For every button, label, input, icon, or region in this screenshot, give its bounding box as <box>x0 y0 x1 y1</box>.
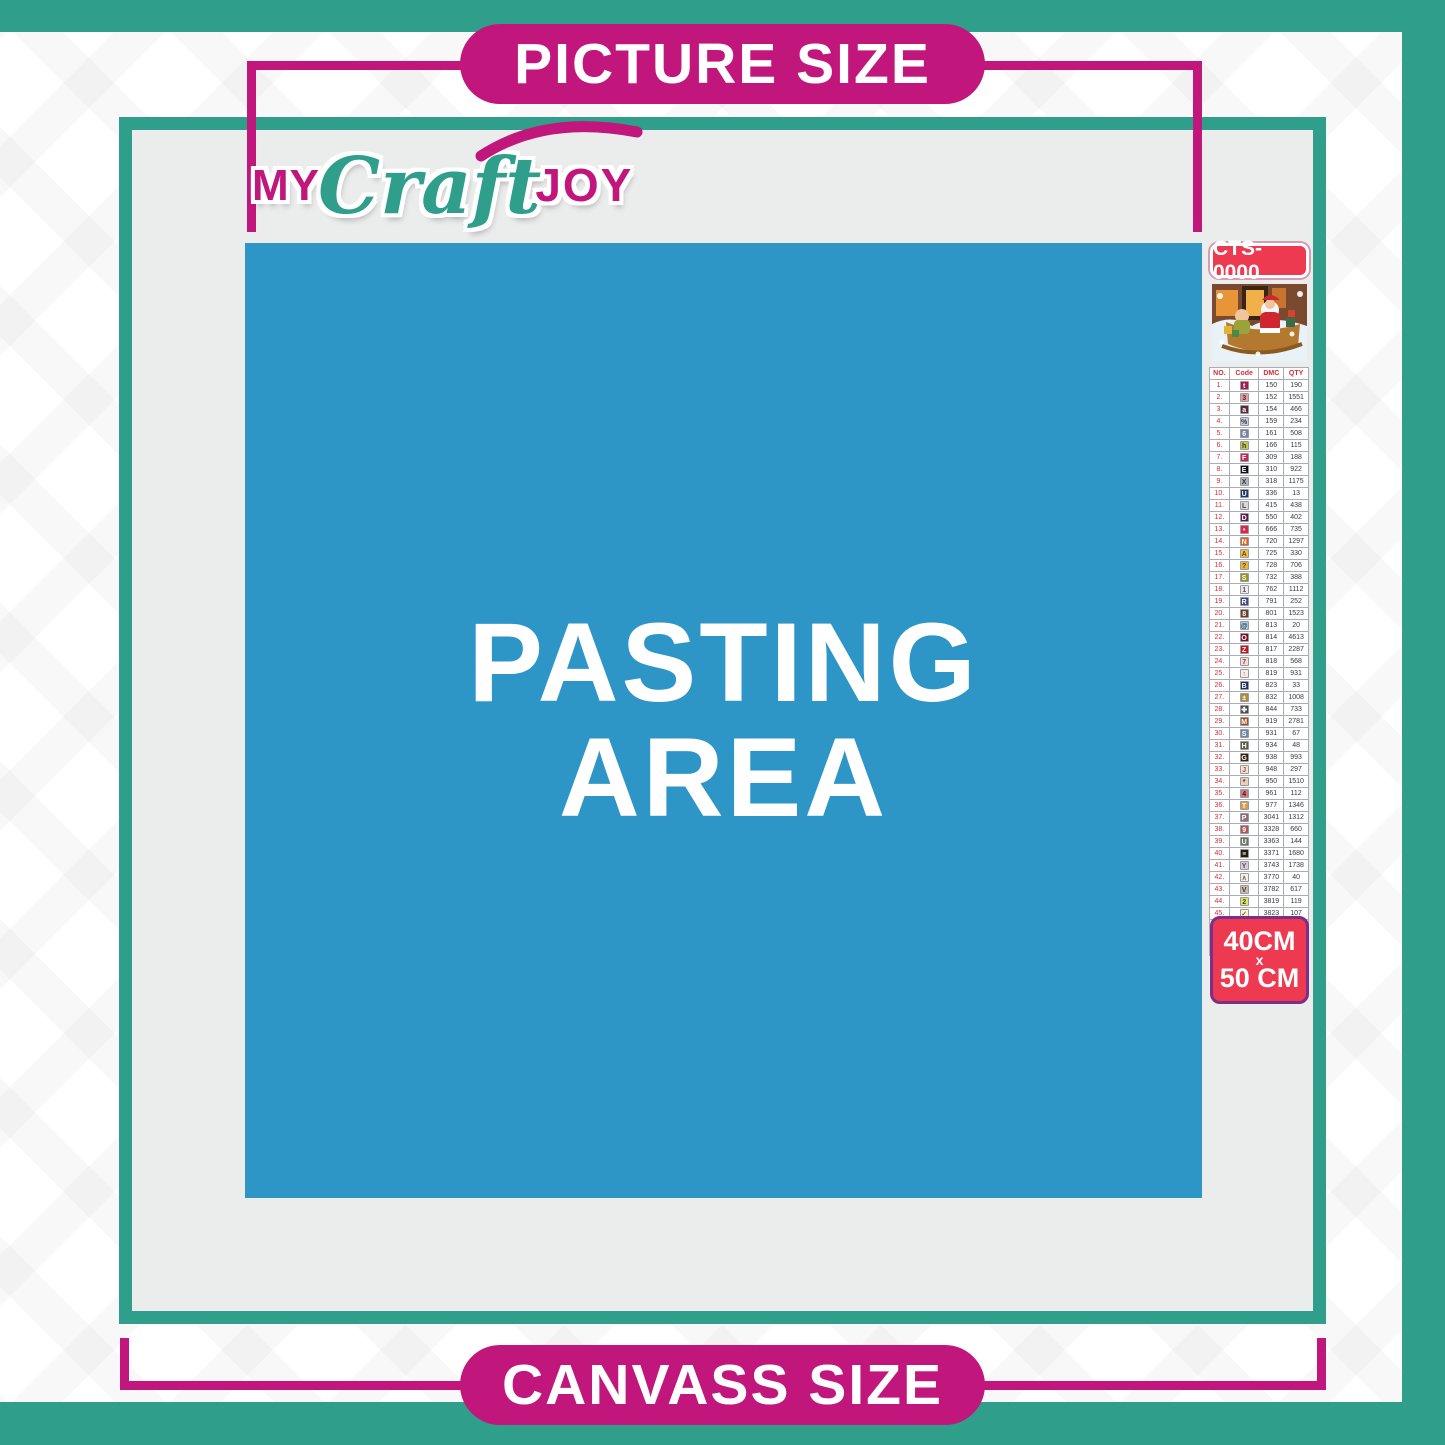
cell-dmc: 819 <box>1259 668 1284 680</box>
cell-dmc: 817 <box>1259 644 1284 656</box>
cell-code: ∧ <box>1229 872 1259 884</box>
cell-qty: 2287 <box>1284 644 1309 656</box>
legend-row: 31.H93448 <box>1210 740 1309 752</box>
cell-qty: 508 <box>1284 428 1309 440</box>
canvas-size-badge: 40CM x 50 CM <box>1210 916 1309 1004</box>
cell-code: % <box>1229 416 1259 428</box>
cell-no: 11. <box>1210 500 1230 512</box>
cell-dmc: 159 <box>1259 416 1284 428</box>
code-chip: A <box>1240 549 1249 558</box>
cell-code: 4 <box>1229 788 1259 800</box>
cell-code: 8 <box>1229 608 1259 620</box>
cell-no: 15. <box>1210 548 1230 560</box>
cell-no: 31. <box>1210 740 1230 752</box>
cell-no: 44. <box>1210 896 1230 908</box>
cell-qty: 112 <box>1284 788 1309 800</box>
cell-code: J <box>1229 764 1259 776</box>
code-chip: S <box>1240 573 1249 582</box>
cell-no: 8. <box>1210 464 1230 476</box>
code-chip: Y <box>1240 861 1249 870</box>
header-dmc: DMC <box>1259 368 1284 380</box>
cell-no: 6. <box>1210 440 1230 452</box>
cell-qty: 1510 <box>1284 776 1309 788</box>
cell-dmc: 666 <box>1259 524 1284 536</box>
cell-no: 26. <box>1210 680 1230 692</box>
legend-row: 28.✤844733 <box>1210 704 1309 716</box>
logo-text-joy: JOY <box>535 162 633 208</box>
code-chip: 8 <box>1240 609 1249 618</box>
cell-code: * <box>1229 776 1259 788</box>
kit-layout-page: PICTURE SIZE CANVASS SIZE MY Craft JOY P… <box>0 0 1445 1445</box>
cell-qty: 115 <box>1284 440 1309 452</box>
cell-no: 30. <box>1210 728 1230 740</box>
cell-qty: 252 <box>1284 596 1309 608</box>
brand-logo: MY Craft JOY <box>252 150 633 212</box>
code-chip: U <box>1240 837 1249 846</box>
cell-qty: 40 <box>1284 872 1309 884</box>
legend-row: 30.S93167 <box>1210 728 1309 740</box>
cell-code: ? <box>1229 560 1259 572</box>
cell-no: 1. <box>1210 380 1230 392</box>
cell-qty: 466 <box>1284 404 1309 416</box>
cell-dmc: 3819 <box>1259 896 1284 908</box>
cell-code: 3 <box>1229 392 1259 404</box>
legend-row: 33.J948297 <box>1210 764 1309 776</box>
cell-code: F <box>1229 452 1259 464</box>
cell-code: 6 <box>1229 428 1259 440</box>
cell-dmc: 415 <box>1259 500 1284 512</box>
code-chip: 1 <box>1240 585 1249 594</box>
header-qty: QTY <box>1284 368 1309 380</box>
legend-row: 13.•666735 <box>1210 524 1309 536</box>
code-chip: O <box>1240 633 1249 642</box>
cell-qty: 388 <box>1284 572 1309 584</box>
code-chip: ? <box>1240 561 1249 570</box>
cell-dmc: 166 <box>1259 440 1284 452</box>
cell-code: U <box>1229 836 1259 848</box>
logo-text-my: MY <box>252 164 320 208</box>
cell-code: ± <box>1229 692 1259 704</box>
cell-code: • <box>1229 524 1259 536</box>
cell-code: M <box>1229 716 1259 728</box>
cell-dmc: 950 <box>1259 776 1284 788</box>
cell-qty: 33 <box>1284 680 1309 692</box>
cell-no: 9. <box>1210 476 1230 488</box>
size-height: 50 CM <box>1220 966 1300 991</box>
legend-row: 17.S732388 <box>1210 572 1309 584</box>
code-chip: Z <box>1240 645 1249 654</box>
cell-qty: 1523 <box>1284 608 1309 620</box>
code-chip: E <box>1240 465 1249 474</box>
legend-row: 21.@81320 <box>1210 620 1309 632</box>
cell-no: 35. <box>1210 788 1230 800</box>
cell-dmc: 938 <box>1259 752 1284 764</box>
cell-dmc: 934 <box>1259 740 1284 752</box>
legend-row: 16.?728706 <box>1210 560 1309 572</box>
cell-qty: 330 <box>1284 548 1309 560</box>
legend-row: 20.88011523 <box>1210 608 1309 620</box>
cell-qty: 660 <box>1284 824 1309 836</box>
cell-dmc: 336 <box>1259 488 1284 500</box>
cell-code: L <box>1229 500 1259 512</box>
cell-qty: 735 <box>1284 524 1309 536</box>
cell-dmc: 832 <box>1259 692 1284 704</box>
cell-qty: 1551 <box>1284 392 1309 404</box>
cell-no: 18. <box>1210 584 1230 596</box>
canvass-bracket-right <box>1317 1338 1326 1390</box>
cell-dmc: 844 <box>1259 704 1284 716</box>
cell-qty: 13 <box>1284 488 1309 500</box>
header-code: Code <box>1229 368 1259 380</box>
cell-no: 20. <box>1210 608 1230 620</box>
legend-row: 1.t150190 <box>1210 380 1309 392</box>
cell-qty: 931 <box>1284 668 1309 680</box>
cell-dmc: 3782 <box>1259 884 1284 896</box>
cell-no: 34. <box>1210 776 1230 788</box>
cell-no: 39. <box>1210 836 1230 848</box>
preview-image <box>1212 284 1307 362</box>
cell-no: 33. <box>1210 764 1230 776</box>
cell-no: 24. <box>1210 656 1230 668</box>
legend-row: 12.D550402 <box>1210 512 1309 524</box>
legend-row: 32.G938993 <box>1210 752 1309 764</box>
legend-row: 6.h166115 <box>1210 440 1309 452</box>
cell-qty: 617 <box>1284 884 1309 896</box>
code-chip: ∧ <box>1240 873 1249 882</box>
cell-no: 12. <box>1210 512 1230 524</box>
code-chip: 6 <box>1240 429 1249 438</box>
cell-dmc: 725 <box>1259 548 1284 560</box>
cell-qty: 1680 <box>1284 848 1309 860</box>
code-chip: 4 <box>1240 789 1249 798</box>
cell-no: 37. <box>1210 812 1230 824</box>
cell-code: O <box>1229 632 1259 644</box>
cell-code: P <box>1229 812 1259 824</box>
legend-row: 3.a154466 <box>1210 404 1309 416</box>
code-chip: S <box>1240 729 1249 738</box>
legend-row: 19.R791252 <box>1210 596 1309 608</box>
cell-qty: 1346 <box>1284 800 1309 812</box>
cell-dmc: 919 <box>1259 716 1284 728</box>
cell-qty: 20 <box>1284 620 1309 632</box>
cell-code: X <box>1229 476 1259 488</box>
cell-dmc: 814 <box>1259 632 1284 644</box>
cell-code: 1 <box>1229 584 1259 596</box>
cell-no: 3. <box>1210 404 1230 416</box>
cell-dmc: 3770 <box>1259 872 1284 884</box>
cell-code: T <box>1229 800 1259 812</box>
code-chip: ± <box>1240 693 1249 702</box>
cell-code: ↑ <box>1229 668 1259 680</box>
cell-qty: 1738 <box>1284 860 1309 872</box>
cell-dmc: 161 <box>1259 428 1284 440</box>
cell-dmc: 318 <box>1259 476 1284 488</box>
cell-qty: 1297 <box>1284 536 1309 548</box>
canvass-size-label: CANVASS SIZE <box>460 1345 985 1425</box>
legend-row: 37.P30411312 <box>1210 812 1309 824</box>
cell-no: 23. <box>1210 644 1230 656</box>
cell-code: G <box>1229 752 1259 764</box>
code-chip: 2 <box>1240 897 1249 906</box>
code-chip: V <box>1240 885 1249 894</box>
code-chip: B <box>1240 681 1249 690</box>
legend-row: 18.17621112 <box>1210 584 1309 596</box>
cell-code: ≡ <box>1229 848 1259 860</box>
cell-code: U <box>1229 488 1259 500</box>
legend-row: 44.23819119 <box>1210 896 1309 908</box>
code-chip: X <box>1240 477 1249 486</box>
cell-dmc: 977 <box>1259 800 1284 812</box>
legend-row: 25.↑819931 <box>1210 668 1309 680</box>
cell-code: Z <box>1229 644 1259 656</box>
cell-dmc: 791 <box>1259 596 1284 608</box>
cell-qty: 733 <box>1284 704 1309 716</box>
cell-qty: 568 <box>1284 656 1309 668</box>
legend-row: 29.M9192781 <box>1210 716 1309 728</box>
cell-dmc: 550 <box>1259 512 1284 524</box>
code-chip: @ <box>1240 621 1249 630</box>
code-chip: ↑ <box>1240 669 1249 678</box>
code-chip: h <box>1240 441 1249 450</box>
cell-qty: 119 <box>1284 896 1309 908</box>
legend-row: 41.Y37431738 <box>1210 860 1309 872</box>
code-chip: J <box>1240 765 1249 774</box>
code-chip: U <box>1240 489 1249 498</box>
code-chip: L <box>1240 501 1249 510</box>
code-chip: % <box>1240 417 1249 426</box>
legend-row: 4.%159234 <box>1210 416 1309 428</box>
logo-swash-icon <box>475 112 645 166</box>
cell-qty: 297 <box>1284 764 1309 776</box>
code-chip: F <box>1240 453 1249 462</box>
legend-row: 36.T9771346 <box>1210 800 1309 812</box>
legend-row: 43.V3782617 <box>1210 884 1309 896</box>
cell-dmc: 961 <box>1259 788 1284 800</box>
cell-dmc: 3041 <box>1259 812 1284 824</box>
cell-qty: 4613 <box>1284 632 1309 644</box>
cell-no: 7. <box>1210 452 1230 464</box>
cell-qty: 1312 <box>1284 812 1309 824</box>
cell-qty: 144 <box>1284 836 1309 848</box>
cell-dmc: 801 <box>1259 608 1284 620</box>
cell-code: A <box>1229 548 1259 560</box>
legend-row: 24.7818568 <box>1210 656 1309 668</box>
cell-code: R <box>1229 596 1259 608</box>
cell-qty: 438 <box>1284 500 1309 512</box>
cell-code: V <box>1229 884 1259 896</box>
cell-code: N <box>1229 536 1259 548</box>
cell-code: ✤ <box>1229 704 1259 716</box>
cell-no: 36. <box>1210 800 1230 812</box>
legend-table-body: 1.t1501902.315215513.a1544664.%1592345.6… <box>1210 380 1309 956</box>
cell-code: S <box>1229 728 1259 740</box>
cell-code: S <box>1229 572 1259 584</box>
code-chip: P <box>1240 813 1249 822</box>
code-chip: t <box>1240 381 1249 390</box>
code-chip: * <box>1240 777 1249 786</box>
cell-qty: 67 <box>1284 728 1309 740</box>
cell-no: 10. <box>1210 488 1230 500</box>
pasting-area-line1: PASTING <box>468 606 979 720</box>
cell-dmc: 931 <box>1259 728 1284 740</box>
cell-dmc: 813 <box>1259 620 1284 632</box>
legend-row: 8.E310922 <box>1210 464 1309 476</box>
cell-qty: 1112 <box>1284 584 1309 596</box>
legend-row: 34.*9501510 <box>1210 776 1309 788</box>
cell-qty: 234 <box>1284 416 1309 428</box>
cell-no: 27. <box>1210 692 1230 704</box>
cell-qty: 190 <box>1284 380 1309 392</box>
cell-no: 17. <box>1210 572 1230 584</box>
cell-qty: 993 <box>1284 752 1309 764</box>
cell-dmc: 152 <box>1259 392 1284 404</box>
cell-qty: 402 <box>1284 512 1309 524</box>
cell-dmc: 818 <box>1259 656 1284 668</box>
legend-row: 39.U3363144 <box>1210 836 1309 848</box>
legend-row: 5.6161508 <box>1210 428 1309 440</box>
cell-code: B <box>1229 680 1259 692</box>
cell-dmc: 720 <box>1259 536 1284 548</box>
code-chip: ✤ <box>1240 705 1249 714</box>
cell-dmc: 823 <box>1259 680 1284 692</box>
cell-dmc: 150 <box>1259 380 1284 392</box>
cell-dmc: 3743 <box>1259 860 1284 872</box>
cell-no: 14. <box>1210 536 1230 548</box>
legend-row: 11.L415438 <box>1210 500 1309 512</box>
cell-no: 22. <box>1210 632 1230 644</box>
cell-qty: 1175 <box>1284 476 1309 488</box>
legend-row: 26.B82333 <box>1210 680 1309 692</box>
cell-no: 2. <box>1210 392 1230 404</box>
legend-header-row: NO. Code DMC QTY <box>1210 368 1309 380</box>
code-chip: 3 <box>1240 393 1249 402</box>
legend-row: 2.31521551 <box>1210 392 1309 404</box>
cell-qty: 922 <box>1284 464 1309 476</box>
cell-dmc: 732 <box>1259 572 1284 584</box>
cell-qty: 188 <box>1284 452 1309 464</box>
cell-code: Y <box>1229 860 1259 872</box>
legend-row: 27.±8321008 <box>1210 692 1309 704</box>
cell-dmc: 310 <box>1259 464 1284 476</box>
cell-dmc: 728 <box>1259 560 1284 572</box>
cell-dmc: 309 <box>1259 452 1284 464</box>
cell-dmc: 154 <box>1259 404 1284 416</box>
cell-no: 29. <box>1210 716 1230 728</box>
pasting-area: PASTING AREA <box>245 243 1202 1198</box>
legend-row: 38.93328660 <box>1210 824 1309 836</box>
cell-no: 40. <box>1210 848 1230 860</box>
legend-row: 7.F309188 <box>1210 452 1309 464</box>
code-chip: a <box>1240 405 1249 414</box>
cell-no: 43. <box>1210 884 1230 896</box>
cell-dmc: 948 <box>1259 764 1284 776</box>
cell-dmc: 762 <box>1259 584 1284 596</box>
right-teal-band <box>1402 0 1445 1445</box>
code-chip: H <box>1240 741 1249 750</box>
cell-code: t <box>1229 380 1259 392</box>
cell-dmc: 3328 <box>1259 824 1284 836</box>
cell-qty: 706 <box>1284 560 1309 572</box>
cell-no: 41. <box>1210 860 1230 872</box>
size-width: 40CM <box>1223 929 1295 954</box>
cell-no: 25. <box>1210 668 1230 680</box>
cell-no: 42. <box>1210 872 1230 884</box>
kit-code-badge: CTS-0000 <box>1210 243 1309 278</box>
legend-row: 22.O8144613 <box>1210 632 1309 644</box>
code-chip: G <box>1240 753 1249 762</box>
code-chip: T <box>1240 801 1249 810</box>
cell-no: 4. <box>1210 416 1230 428</box>
code-chip: 7 <box>1240 657 1249 666</box>
cell-qty: 2781 <box>1284 716 1309 728</box>
code-chip: M <box>1240 717 1249 726</box>
cell-dmc: 3363 <box>1259 836 1284 848</box>
cell-code: @ <box>1229 620 1259 632</box>
legend-row: 35.4961112 <box>1210 788 1309 800</box>
cell-qty: 1008 <box>1284 692 1309 704</box>
legend-row: 10.U33613 <box>1210 488 1309 500</box>
cell-qty: 48 <box>1284 740 1309 752</box>
cell-dmc: 3371 <box>1259 848 1284 860</box>
code-chip: R <box>1240 597 1249 606</box>
picture-size-label: PICTURE SIZE <box>460 24 985 104</box>
legend-row: 23.Z8172287 <box>1210 644 1309 656</box>
header-no: NO. <box>1210 368 1230 380</box>
code-chip: ≡ <box>1240 849 1249 858</box>
cell-code: h <box>1229 440 1259 452</box>
legend-row: 42.∧377040 <box>1210 872 1309 884</box>
canvass-bracket-left <box>120 1338 129 1390</box>
legend-row: 15.A725330 <box>1210 548 1309 560</box>
cell-no: 38. <box>1210 824 1230 836</box>
legend-row: 40.≡33711680 <box>1210 848 1309 860</box>
cell-code: 7 <box>1229 656 1259 668</box>
code-chip: N <box>1240 537 1249 546</box>
cell-no: 13. <box>1210 524 1230 536</box>
cell-code: D <box>1229 512 1259 524</box>
cell-no: 28. <box>1210 704 1230 716</box>
cell-code: 9 <box>1229 824 1259 836</box>
cell-code: 2 <box>1229 896 1259 908</box>
cell-no: 5. <box>1210 428 1230 440</box>
pasting-area-line2: AREA <box>559 721 888 835</box>
legend-row: 14.N7201297 <box>1210 536 1309 548</box>
cell-no: 19. <box>1210 596 1230 608</box>
code-chip: 9 <box>1240 825 1249 834</box>
cell-no: 21. <box>1210 620 1230 632</box>
legend-row: 9.X3181175 <box>1210 476 1309 488</box>
cell-code: H <box>1229 740 1259 752</box>
picture-bracket-right <box>1193 61 1202 232</box>
cell-code: E <box>1229 464 1259 476</box>
code-chip: • <box>1240 525 1249 534</box>
cell-code: a <box>1229 404 1259 416</box>
cell-no: 32. <box>1210 752 1230 764</box>
code-chip: D <box>1240 513 1249 522</box>
color-legend-table: NO. Code DMC QTY 1.t1501902.315215513.a1… <box>1209 367 1309 956</box>
cell-no: 16. <box>1210 560 1230 572</box>
